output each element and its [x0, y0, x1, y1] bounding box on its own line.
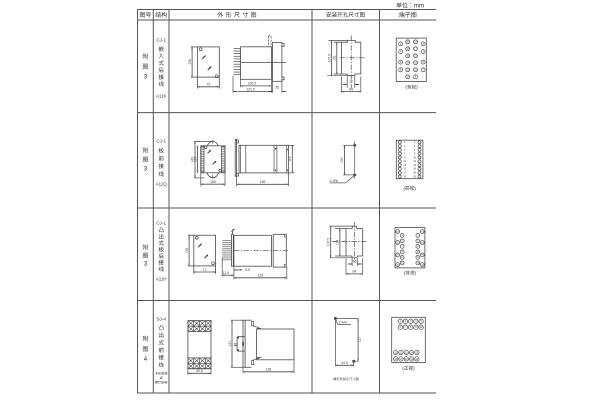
svg-text:121: 121 — [228, 341, 232, 347]
svg-text:(: ( — [405, 85, 407, 90]
svg-text:): ) — [415, 270, 417, 275]
svg-text:m: m — [419, 4, 424, 10]
svg-text:(: ( — [403, 186, 405, 191]
svg-text:9.5: 9.5 — [245, 268, 250, 272]
svg-text:121.5: 121.5 — [246, 87, 255, 91]
svg-text:18: 18 — [413, 173, 416, 175]
svg-text:11.5: 11.5 — [223, 271, 229, 275]
svg-text:): ) — [416, 85, 418, 90]
svg-text:125: 125 — [193, 156, 197, 162]
svg-text:9: 9 — [404, 157, 406, 159]
svg-text:16: 16 — [349, 79, 353, 83]
svg-text:84: 84 — [349, 87, 353, 91]
svg-text:7: 7 — [404, 154, 406, 156]
svg-text:4: 4 — [144, 357, 148, 363]
svg-text:44.5: 44.5 — [341, 361, 348, 365]
svg-text:2-M4: 2-M4 — [339, 320, 347, 324]
svg-text:14: 14 — [413, 165, 416, 167]
svg-text:112: 112 — [358, 337, 362, 342]
svg-text:3: 3 — [144, 75, 148, 81]
svg-text:CJ-1: CJ-1 — [156, 139, 166, 144]
svg-text:A11H: A11H — [156, 277, 167, 282]
svg-text:2-Φ6: 2-Φ6 — [330, 179, 339, 183]
svg-text:72: 72 — [207, 83, 211, 87]
svg-text:A11Q: A11Q — [156, 181, 167, 186]
svg-text:126: 126 — [258, 274, 264, 278]
svg-text:3: 3 — [404, 146, 406, 148]
svg-text:100.5: 100.5 — [248, 82, 257, 86]
svg-text:107.5: 107.5 — [326, 238, 330, 246]
svg-text:): ) — [414, 186, 416, 191]
svg-text:15: 15 — [403, 169, 406, 171]
svg-text:20: 20 — [413, 176, 416, 178]
svg-text:SJ-4: SJ-4 — [156, 317, 166, 322]
svg-text:72: 72 — [203, 268, 207, 272]
svg-text:CJ-1: CJ-1 — [156, 38, 166, 43]
svg-text:4: 4 — [414, 146, 416, 148]
svg-text:17: 17 — [403, 173, 406, 175]
svg-text:19: 19 — [403, 176, 406, 178]
svg-text:35: 35 — [275, 85, 279, 89]
svg-text:64: 64 — [352, 270, 356, 274]
svg-text:2: 2 — [414, 142, 416, 144]
svg-text:133: 133 — [340, 157, 344, 163]
svg-text:(: ( — [404, 270, 406, 275]
svg-text:107.5: 107.5 — [327, 54, 331, 62]
svg-text:135: 135 — [188, 59, 192, 65]
svg-text:3: 3 — [144, 262, 148, 268]
svg-text:105: 105 — [210, 180, 216, 184]
svg-text:115: 115 — [288, 156, 292, 161]
svg-text:11: 11 — [403, 161, 406, 163]
svg-text:5: 5 — [404, 150, 406, 152]
svg-text:156: 156 — [260, 180, 266, 184]
svg-text:A11K: A11K — [156, 94, 166, 99]
svg-text:104: 104 — [336, 239, 340, 245]
svg-text:8: 8 — [414, 154, 416, 156]
svg-text:6: 6 — [414, 150, 416, 152]
svg-text:3: 3 — [144, 167, 148, 173]
svg-text:101: 101 — [333, 55, 337, 61]
svg-text:12: 12 — [413, 161, 416, 163]
svg-text:10: 10 — [413, 157, 416, 159]
svg-text:): ) — [413, 366, 415, 371]
svg-text:16: 16 — [413, 169, 416, 171]
svg-text:CJ-1: CJ-1 — [156, 221, 166, 226]
svg-text:128: 128 — [266, 368, 272, 372]
svg-text:60.5: 60.5 — [196, 369, 203, 373]
svg-text:1: 1 — [404, 142, 406, 144]
svg-text:135: 135 — [185, 248, 189, 254]
svg-text:13: 13 — [403, 165, 406, 167]
svg-text:16: 16 — [353, 260, 357, 264]
svg-text:(: ( — [402, 366, 404, 371]
